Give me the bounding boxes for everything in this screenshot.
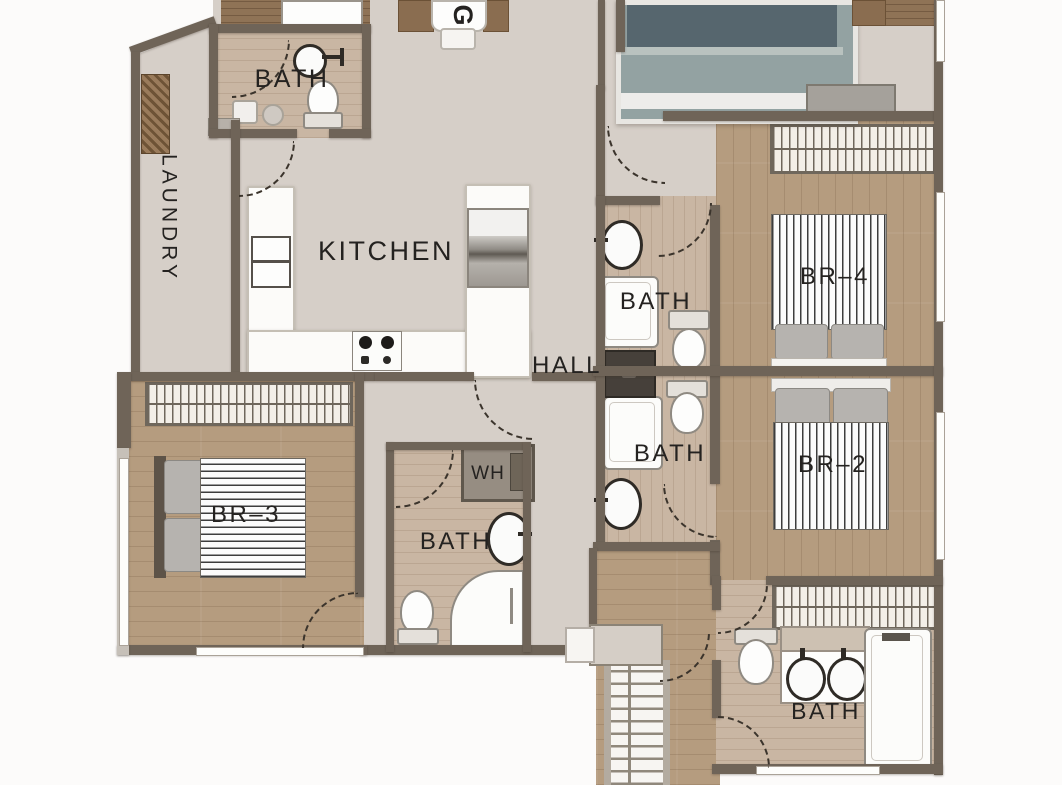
closet-bath-ensuite xyxy=(772,584,938,630)
room-label-dining-partial: G xyxy=(448,0,478,32)
sink-icon xyxy=(601,220,643,270)
window-icon xyxy=(756,766,880,775)
room-label-kitchen: KITCHEN xyxy=(318,236,454,266)
wall xyxy=(386,442,394,652)
room-label-bedroom-4: BR–4 xyxy=(788,262,882,292)
bathtub-inner xyxy=(871,635,923,761)
faucet-icon xyxy=(322,55,342,59)
stove-knob xyxy=(383,356,391,364)
stove-knob xyxy=(361,356,369,364)
wall xyxy=(523,442,531,652)
wall xyxy=(386,442,531,450)
window-icon xyxy=(936,0,945,62)
tub-shelf xyxy=(882,633,910,641)
master-nightstand xyxy=(852,0,886,26)
wall xyxy=(934,0,943,775)
room-label-bath-center: BATH xyxy=(410,528,502,556)
room-label-bedroom-2: BR–2 xyxy=(786,450,880,480)
laundry-chute xyxy=(141,74,170,154)
bathtub-icon xyxy=(864,628,932,770)
wall xyxy=(596,85,605,205)
pillow-icon xyxy=(833,388,888,426)
floor-plan: WH xyxy=(0,0,1062,785)
toilet-tank xyxy=(397,628,439,645)
wall xyxy=(663,111,940,121)
stove-burner xyxy=(359,336,372,349)
vanity-sinks xyxy=(780,650,870,704)
stair-rail xyxy=(628,660,631,785)
room-label-hall: HALL xyxy=(530,352,604,380)
room-label-bedroom-3: BR–3 xyxy=(198,500,294,530)
stair-landing xyxy=(589,624,663,666)
wall xyxy=(209,24,218,138)
toilet-icon xyxy=(670,392,704,434)
kitchen-sink xyxy=(251,236,291,288)
wall xyxy=(712,660,721,718)
wall xyxy=(362,24,371,138)
pillow-icon xyxy=(775,324,828,360)
master-bed-headboard xyxy=(627,5,837,47)
wall xyxy=(616,0,625,52)
room-label-laundry: LAUNDRY xyxy=(152,148,186,288)
kitchen-stove xyxy=(352,331,402,371)
wall xyxy=(355,372,364,597)
wall xyxy=(131,52,140,378)
wall xyxy=(589,548,597,628)
shower-handle xyxy=(510,588,513,624)
room-label-wh: WH xyxy=(466,447,510,499)
bath-accessory xyxy=(262,104,284,126)
master-bed-fold xyxy=(621,47,843,55)
wall xyxy=(209,24,371,33)
window-icon xyxy=(196,647,364,656)
sink-icon xyxy=(600,478,642,530)
wall xyxy=(766,576,943,585)
window-icon xyxy=(936,192,945,322)
room-label-bath-upper: BATH xyxy=(610,288,702,316)
closet-bedroom-4 xyxy=(770,124,940,174)
wall xyxy=(131,372,375,381)
wall xyxy=(598,0,605,90)
window-icon xyxy=(936,412,945,560)
stove-burner xyxy=(381,336,394,349)
toilet-tank xyxy=(303,112,343,129)
wall xyxy=(593,366,943,376)
window-icon xyxy=(119,458,129,646)
dining-table-left xyxy=(398,0,434,32)
wall xyxy=(596,196,660,205)
sink-icon xyxy=(827,657,867,701)
wall xyxy=(329,129,371,138)
room-label-bath-ensuite: BATH xyxy=(784,698,868,724)
faucet-icon xyxy=(800,648,805,658)
room-label-bath-lower: BATH xyxy=(626,440,714,468)
wall xyxy=(209,129,297,138)
kitchen-sink-divider xyxy=(253,260,289,263)
room-label-bath-top-left: BATH xyxy=(240,64,344,94)
wall xyxy=(593,542,720,551)
refrigerator xyxy=(467,208,529,288)
pillow-icon xyxy=(775,388,830,426)
sink-icon xyxy=(786,657,826,701)
toilet-icon xyxy=(738,639,774,685)
pillow-icon xyxy=(831,324,884,360)
wall xyxy=(375,372,474,381)
closet-bedroom-3 xyxy=(145,382,353,426)
wall xyxy=(117,372,131,448)
entry-step xyxy=(565,627,595,663)
toilet-icon xyxy=(672,328,706,370)
faucet-icon xyxy=(841,648,846,658)
bed-bedroom-4 xyxy=(771,214,887,370)
